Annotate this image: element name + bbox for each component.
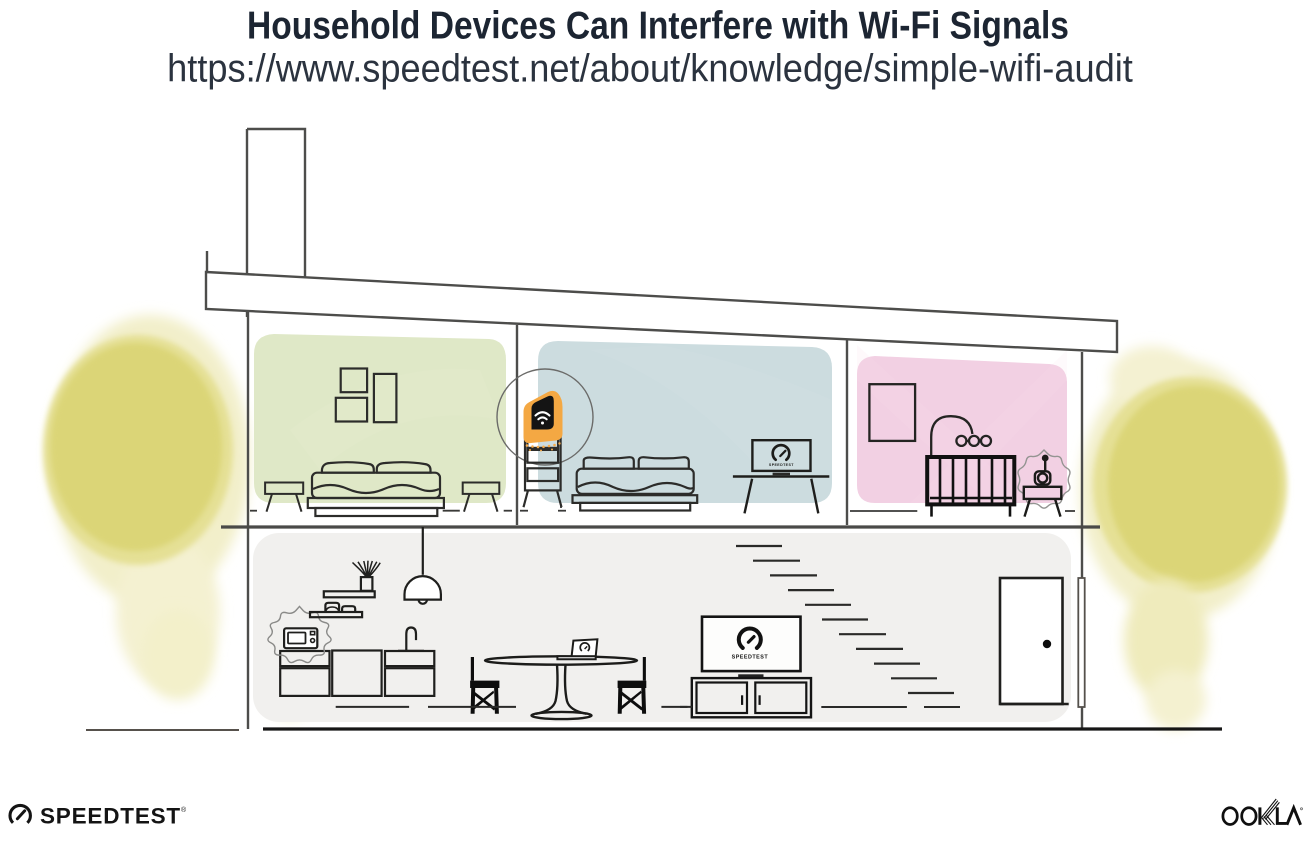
svg-text:SPEEDTEST: SPEEDTEST <box>732 655 769 661</box>
svg-text:https://www.speedtest.net/abou: https://www.speedtest.net/about/knowledg… <box>167 46 1133 89</box>
svg-text:®: ® <box>181 806 187 814</box>
svg-text:SPEEDTEST: SPEEDTEST <box>769 463 794 467</box>
svg-text:Household Devices Can Interfer: Household Devices Can Interfere with Wi-… <box>247 3 1069 47</box>
svg-text:SPEEDTEST: SPEEDTEST <box>40 804 181 829</box>
